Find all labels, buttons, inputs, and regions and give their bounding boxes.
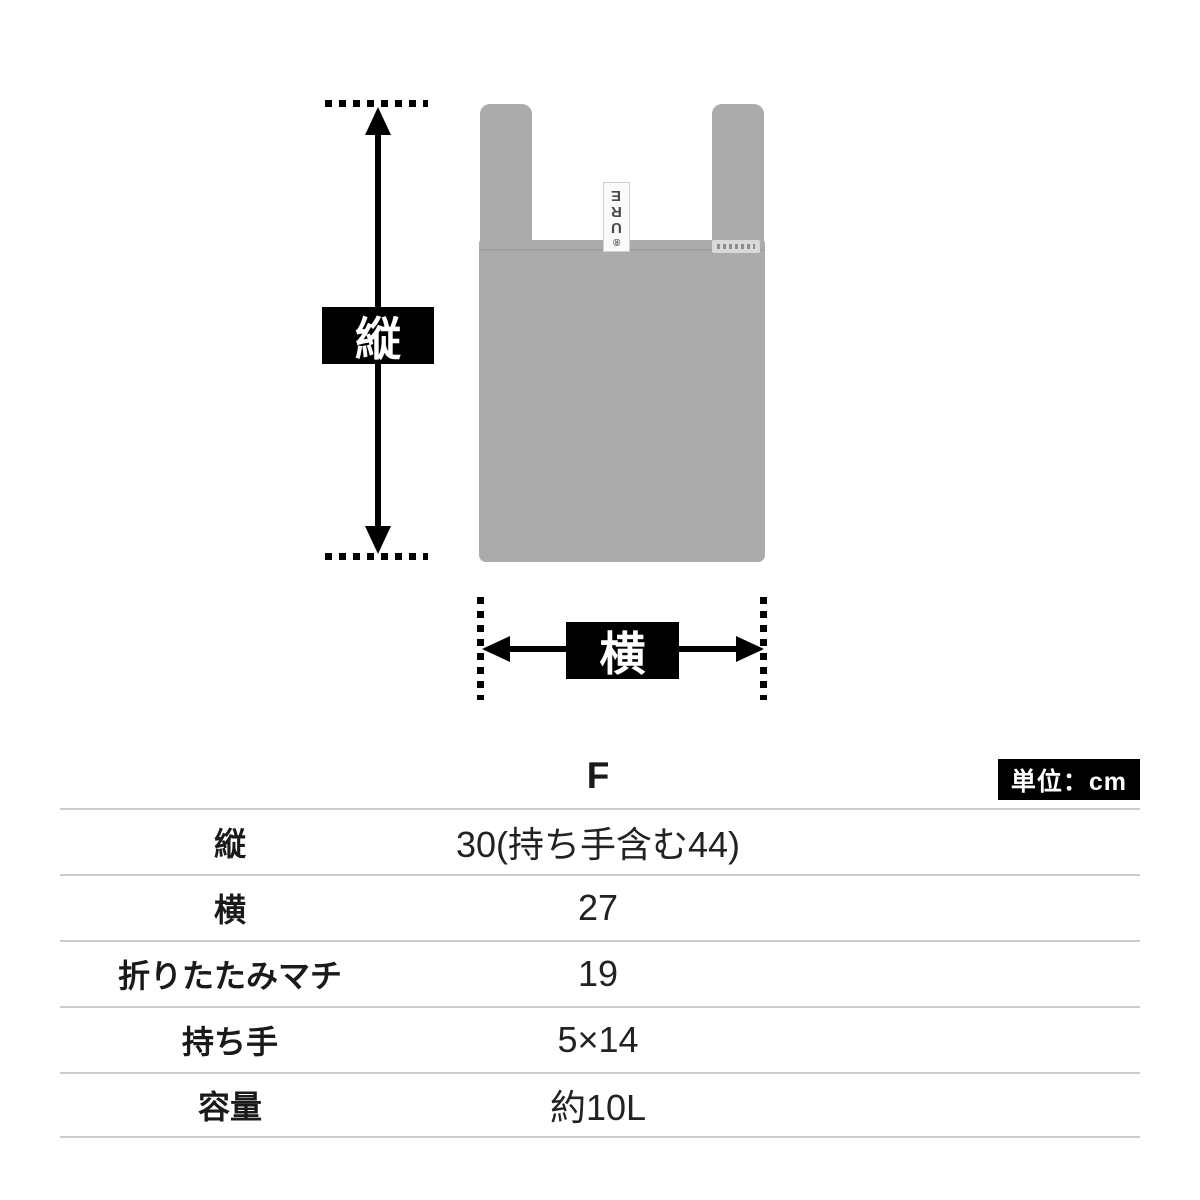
tag-registered-mark: ® bbox=[613, 236, 620, 246]
size-spec-table-header: F 単位：cm bbox=[60, 744, 1140, 808]
bag-ribbon-tag: E R U ® bbox=[603, 182, 630, 252]
bag-body bbox=[479, 240, 765, 562]
table-row: 横 27 bbox=[60, 874, 1140, 940]
horizontal-arrow-head-right-icon bbox=[736, 636, 764, 662]
tag-letter: R bbox=[611, 204, 622, 219]
row-value: 5×14 bbox=[400, 1019, 796, 1061]
size-spec-table: F 単位：cm 縦 30(持ち手含む44) 横 27 折りたたみマチ 19 持ち… bbox=[60, 744, 1140, 1138]
vertical-extent-bottom-dotted-line bbox=[325, 553, 428, 560]
vertical-dimension-label: 縦 bbox=[322, 307, 434, 364]
bag-right-handle bbox=[712, 104, 764, 246]
vertical-dimension-label-text: 縦 bbox=[355, 303, 401, 369]
row-label: 持ち手 bbox=[60, 1017, 400, 1063]
row-value: 約10L bbox=[400, 1079, 796, 1131]
table-row: 容量 約10L bbox=[60, 1072, 1140, 1138]
row-label: 折りたたみマチ bbox=[60, 951, 400, 997]
bag-left-handle bbox=[480, 104, 532, 246]
row-value: 19 bbox=[400, 953, 796, 995]
horizontal-dimension-label-text: 横 bbox=[600, 618, 646, 684]
row-label: 横 bbox=[60, 885, 400, 931]
bag-brand-label bbox=[712, 240, 760, 253]
unit-badge: 単位：cm bbox=[998, 759, 1140, 800]
vertical-extent-top-dotted-line bbox=[325, 100, 428, 107]
vertical-arrow-head-down-icon bbox=[365, 526, 391, 554]
vertical-arrow-head-up-icon bbox=[365, 107, 391, 135]
row-value: 30(持ち手含む44) bbox=[400, 816, 796, 868]
row-value: 27 bbox=[400, 887, 796, 929]
horizontal-arrow-head-left-icon bbox=[482, 636, 510, 662]
tag-letter: E bbox=[611, 188, 621, 203]
table-row: 折りたたみマチ 19 bbox=[60, 940, 1140, 1006]
tag-letter: U bbox=[611, 220, 622, 235]
row-label: 縦 bbox=[60, 819, 400, 865]
row-label: 容量 bbox=[60, 1082, 400, 1128]
size-column-header: F bbox=[400, 755, 796, 797]
table-row: 持ち手 5×14 bbox=[60, 1006, 1140, 1072]
table-row: 縦 30(持ち手含む44) bbox=[60, 808, 1140, 874]
horizontal-dimension-label: 横 bbox=[566, 622, 679, 679]
brand-label-tiny-text bbox=[717, 244, 755, 249]
